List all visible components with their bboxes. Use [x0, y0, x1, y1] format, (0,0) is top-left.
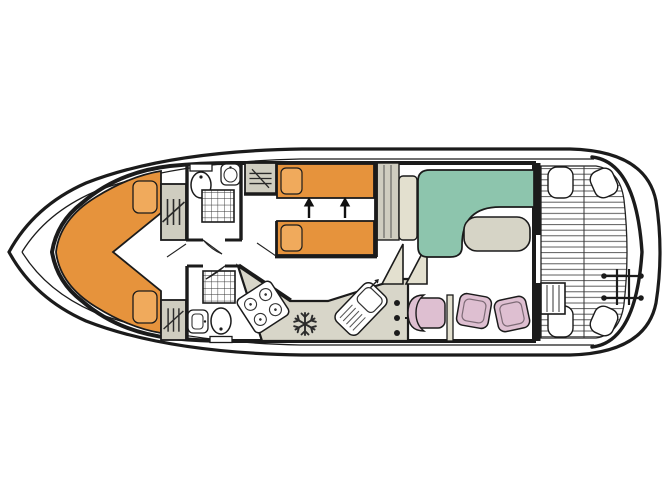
twin-cabin — [277, 164, 374, 255]
bow-cabin — [56, 171, 161, 333]
shower — [203, 271, 235, 303]
washbasin-tap-dot — [204, 320, 206, 322]
saloon-table — [464, 217, 530, 251]
cupboard — [377, 163, 399, 240]
saloon-rear-wall — [535, 163, 541, 235]
helm-chair — [408, 295, 445, 331]
pillow — [281, 168, 302, 194]
pillow — [281, 225, 302, 251]
toilet-flush-dot — [219, 327, 222, 330]
door — [167, 244, 186, 257]
toilet-flush-dot — [199, 175, 202, 178]
stool — [493, 295, 531, 333]
console-dial — [394, 330, 400, 336]
helm-station — [394, 292, 531, 341]
shower-room-forward — [190, 164, 240, 222]
door — [203, 240, 222, 254]
saloon-rear-wall — [535, 283, 541, 341]
console-dial — [394, 300, 400, 306]
corner-seat — [548, 167, 573, 198]
toilet-tank — [190, 164, 212, 171]
boat-floor-plan — [0, 0, 667, 500]
door — [257, 243, 276, 256]
step-triangle — [382, 244, 403, 284]
saloon — [399, 170, 534, 257]
stool — [455, 292, 492, 329]
pillow — [133, 181, 157, 213]
aft-deck — [541, 165, 644, 338]
console-dial — [394, 315, 400, 321]
shower-room-aft — [188, 271, 235, 343]
beds-join-arrow-icon — [305, 198, 314, 218]
beds-join-arrow-icon — [341, 198, 350, 218]
sofa-backrest — [399, 176, 417, 240]
shower — [202, 190, 234, 222]
toilet-base — [210, 337, 232, 343]
washbasin-tap-dot — [229, 166, 231, 168]
helm-partition — [447, 295, 453, 341]
boat-floor-plan-canvas — [0, 0, 667, 500]
engine-hatch-steps — [541, 283, 565, 314]
pillow — [133, 291, 157, 323]
